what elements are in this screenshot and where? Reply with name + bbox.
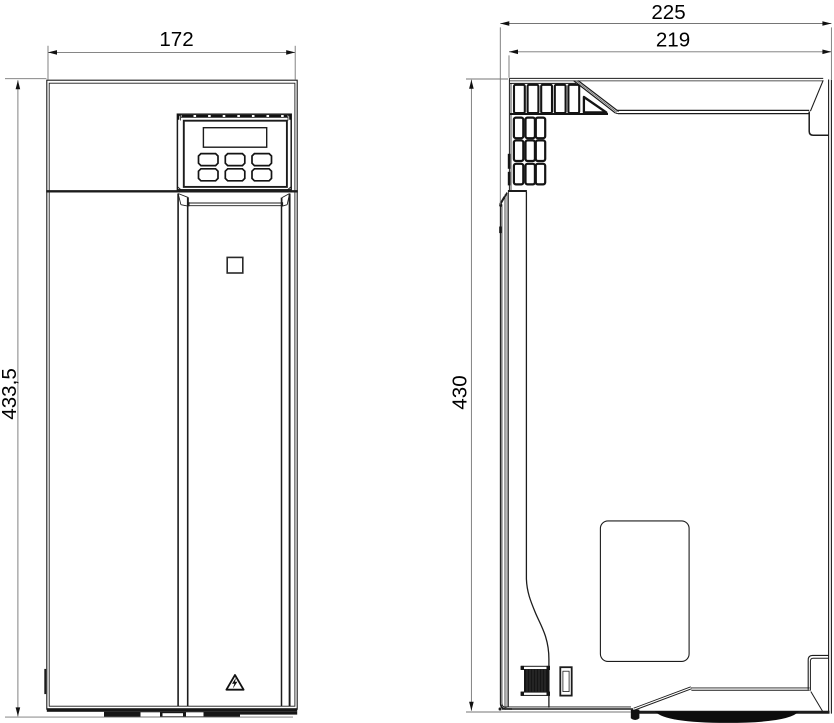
svg-text:433,5: 433,5 <box>0 368 21 420</box>
svg-text:219: 219 <box>656 29 690 52</box>
svg-text:430: 430 <box>449 375 472 409</box>
svg-text:225: 225 <box>651 1 685 24</box>
svg-text:172: 172 <box>159 28 193 51</box>
